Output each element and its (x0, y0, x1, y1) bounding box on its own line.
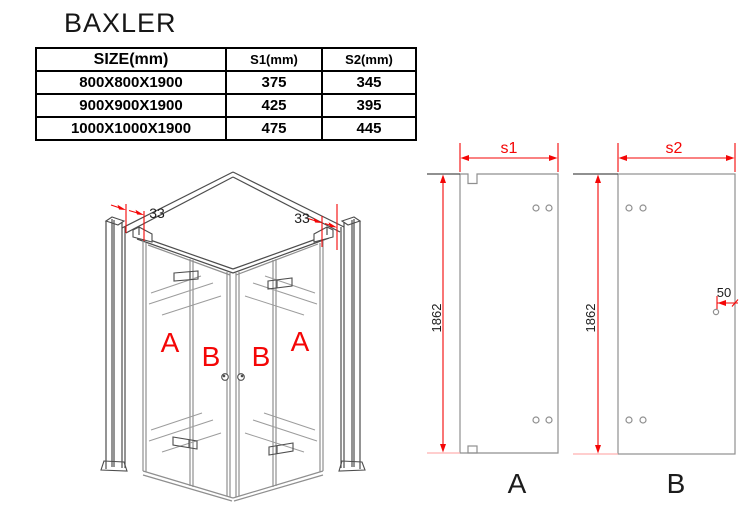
panel-a-width-value: s1 (501, 140, 518, 157)
panel-b-width-value: s2 (666, 140, 683, 157)
dimension-height-b: 1862 (583, 175, 601, 454)
hinge-top-left (174, 271, 198, 281)
panel-b-elevation: 1862 s2 50 B (573, 140, 738, 499)
iso-label-a-right: A (291, 326, 310, 357)
dimension-width-a: s1 (460, 140, 558, 172)
hole-offset-value: 50 (717, 285, 731, 300)
dimension-height-a: 1862 (429, 175, 446, 453)
iso-label-b-left: B (202, 341, 221, 372)
door-knob-right (238, 374, 245, 381)
panel-a-elevation: 1862 s1 A (427, 140, 558, 499)
spec-sheet: BAXLER SIZE(mm) S1(mm) S2(mm) 800X800X19… (0, 0, 750, 509)
right-wall-profile (339, 217, 365, 471)
panel-b-height-value: 1862 (583, 304, 598, 333)
door-knob-left (222, 374, 229, 381)
dimension-width-b: s2 (618, 140, 735, 172)
left-wall-bracket (133, 227, 152, 242)
technical-drawing-canvas: 33 33 A B B A (0, 0, 750, 509)
right-wall-bracket (314, 227, 333, 242)
dim-33-right-value: 33 (294, 210, 310, 226)
iso-label-b-right: B (252, 341, 271, 372)
corner-post (227, 272, 239, 497)
left-wall-profile (101, 217, 127, 471)
dim-33-left-value: 33 (149, 205, 165, 221)
panel-b-label: B (667, 468, 686, 499)
shower-isometric-drawing: 33 33 A B B A (101, 172, 365, 501)
panel-a-label: A (508, 468, 527, 499)
panel-a-height-value: 1862 (429, 304, 444, 333)
iso-label-a-left: A (161, 327, 180, 358)
